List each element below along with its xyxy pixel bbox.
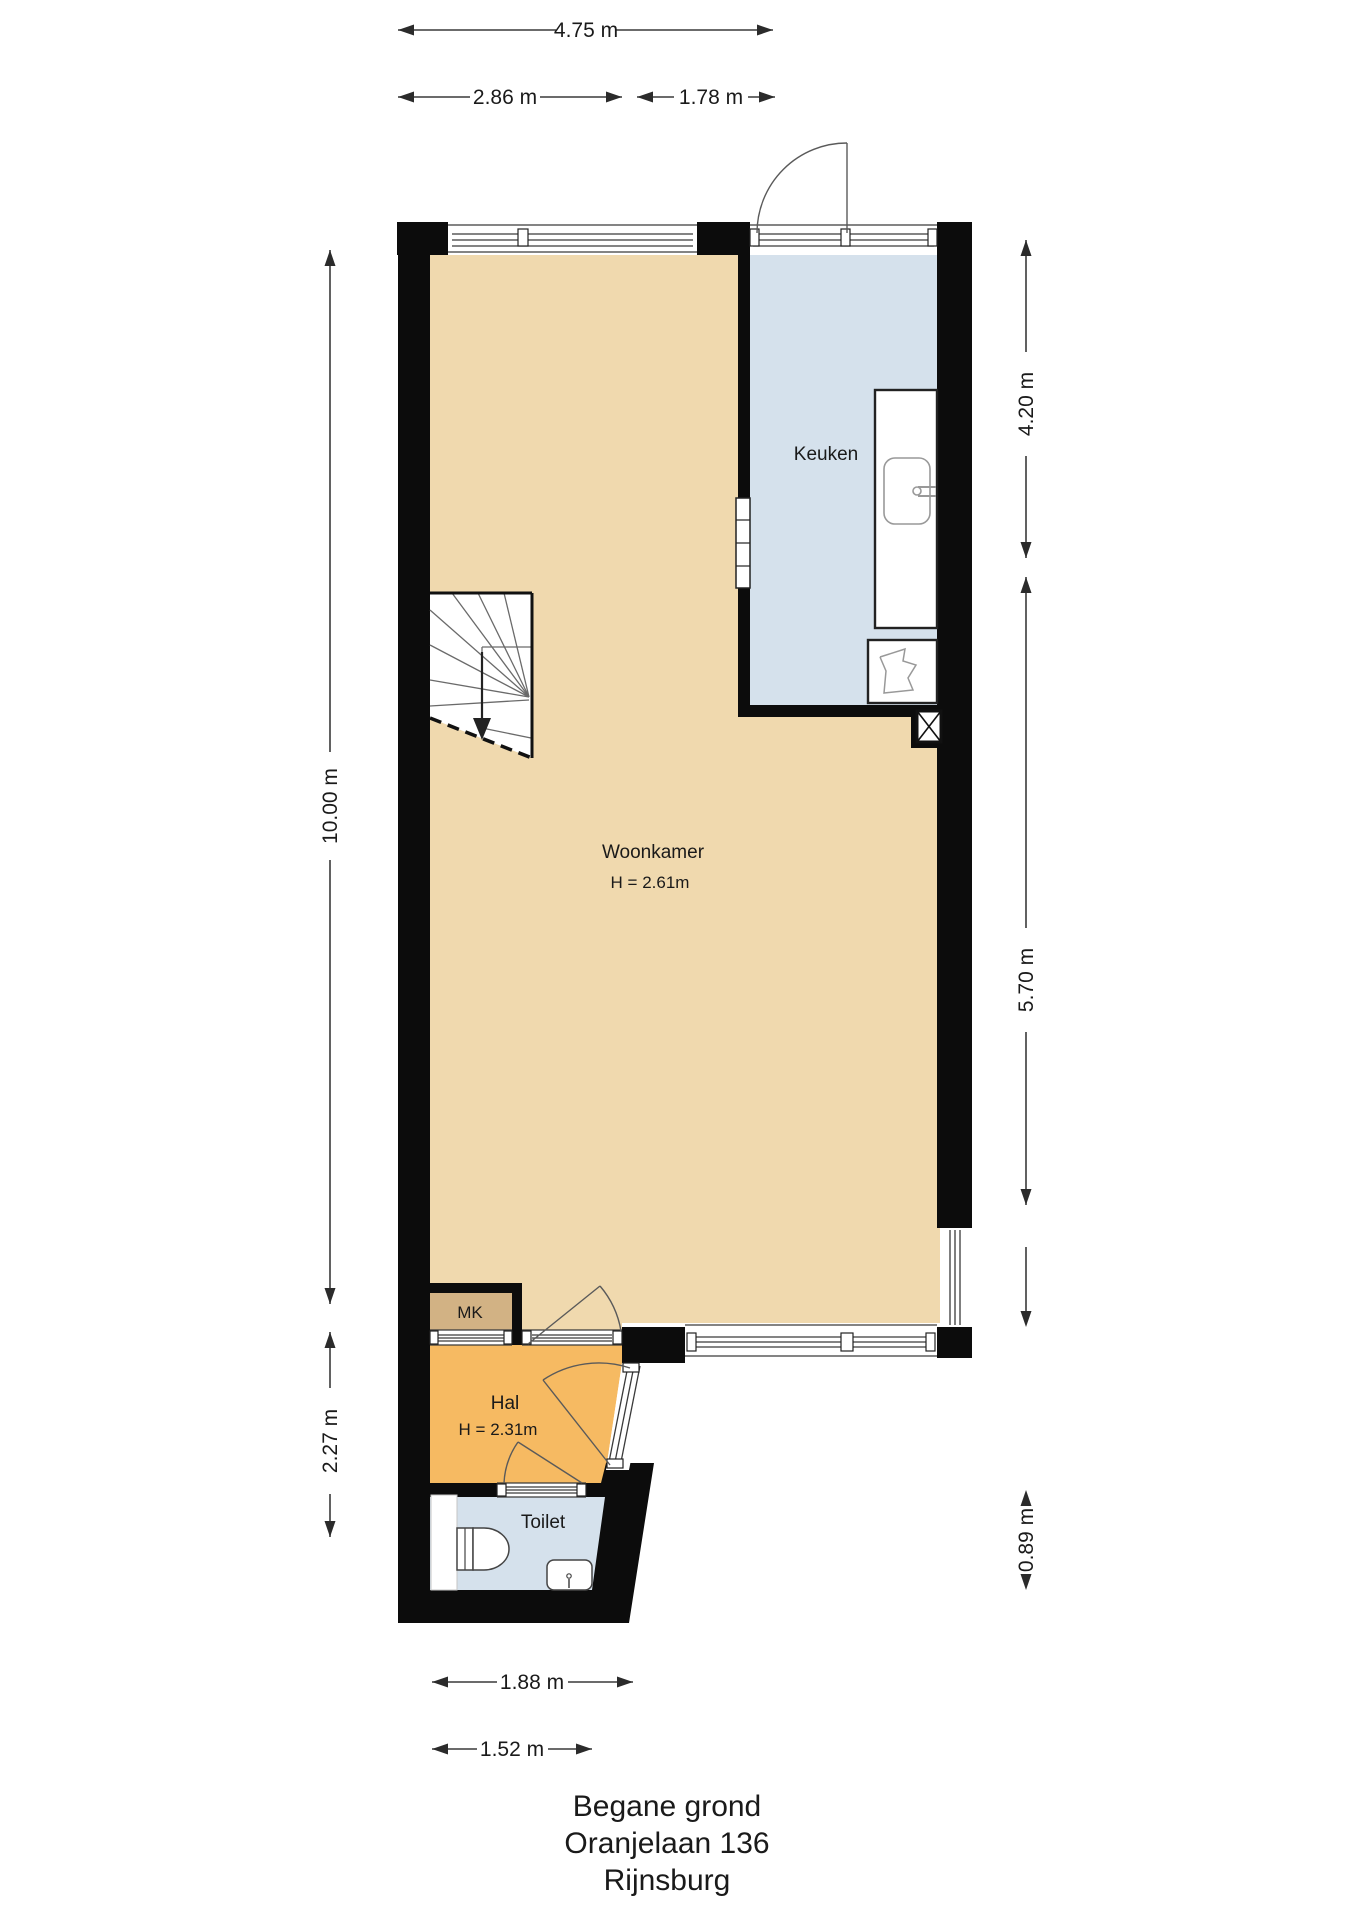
toilet-fixture: [457, 1528, 509, 1570]
dim-top-left-label: 2.86 m: [473, 86, 537, 109]
dim-right-middle: 5.70 m: [1015, 577, 1038, 1205]
floorplan-drawing: 4.75 m 2.86 m 1.78 m 10.00 m: [0, 0, 1358, 1920]
dim-left-upper: 10.00 m: [319, 250, 342, 1304]
dim-top-right-label: 1.78 m: [679, 86, 743, 109]
dim-right-upper-label: 4.20 m: [1015, 372, 1038, 436]
window-toilet-door: [497, 1483, 586, 1497]
woonkamer-floor-ext: [522, 1283, 622, 1330]
dim-bottom-inner-label: 1.52 m: [480, 1738, 544, 1761]
wall-radiator: [736, 498, 750, 588]
woonkamer-floor-right: [738, 717, 940, 1323]
woonkamer-floor: [430, 255, 738, 1323]
dim-bottom-inner: 1.52 m: [432, 1738, 592, 1761]
mk-label: MK: [457, 1303, 483, 1322]
wall-left: [398, 222, 430, 1623]
window-mk: [430, 1330, 512, 1345]
wall-mk-right: [512, 1283, 522, 1345]
dim-left-lower-label: 2.27 m: [319, 1409, 342, 1473]
kitchen-sink: [884, 458, 930, 524]
window-keuken-door: [750, 222, 937, 255]
dim-right-lower: 0.89 m: [1015, 1247, 1038, 1590]
dim-right-lower-label: 0.89 m: [1015, 1508, 1038, 1572]
wall-mk-top: [430, 1283, 522, 1293]
dim-top-right: 1.78 m: [637, 86, 775, 109]
dim-left-lower: 2.27 m: [319, 1332, 342, 1537]
title-line-street: Oranjelaan 136: [564, 1827, 769, 1860]
floorplan-page: 4.75 m 2.86 m 1.78 m 10.00 m: [0, 0, 1358, 1920]
hal-label: Hal: [491, 1393, 520, 1414]
window-woonkamer-top: [448, 222, 697, 255]
wall-right-bottom-corner: [937, 1327, 972, 1358]
wall-top-mid: [697, 222, 750, 255]
dim-top-left: 2.86 m: [398, 86, 622, 109]
kitchen-appliance: [868, 640, 937, 703]
hal-height-label: H = 2.31m: [459, 1420, 538, 1439]
dim-bottom-outer: 1.88 m: [432, 1671, 633, 1694]
duct-box: [917, 711, 941, 742]
wall-top-right-corner: [937, 222, 972, 255]
toilet-duct: [431, 1495, 457, 1590]
dim-top-total-label: 4.75 m: [554, 19, 618, 42]
floor-fills: [430, 255, 940, 1590]
plan-title: Begane grond Oranjelaan 136 Rijnsburg: [564, 1790, 769, 1897]
title-line-city: Rijnsburg: [604, 1864, 731, 1897]
dim-top-total: 4.75 m: [398, 19, 773, 42]
wall-keuken-woonkamer: [738, 255, 750, 705]
dim-left-upper-label: 10.00 m: [319, 768, 342, 844]
hal-floor: [430, 1345, 622, 1483]
toilet-basin: [547, 1560, 592, 1590]
dim-right-upper: 4.20 m: [1015, 240, 1038, 558]
woonkamer-label: Woonkamer: [602, 842, 705, 863]
dim-bottom-outer-label: 1.88 m: [500, 1671, 564, 1694]
toilet-label: Toilet: [521, 1512, 566, 1533]
window-woonkamer-rear: [685, 1323, 937, 1358]
title-line-floor: Begane grond: [573, 1790, 762, 1823]
window-right-side: [944, 1228, 972, 1327]
kitchen-counter: [875, 390, 937, 628]
woonkamer-height-label: H = 2.61m: [611, 873, 690, 892]
dim-right-middle-label: 5.70 m: [1015, 948, 1038, 1012]
wall-frontdoor-corner: [622, 1327, 685, 1363]
keuken-label: Keuken: [794, 444, 858, 465]
keuken-entrance-door: [757, 143, 847, 233]
